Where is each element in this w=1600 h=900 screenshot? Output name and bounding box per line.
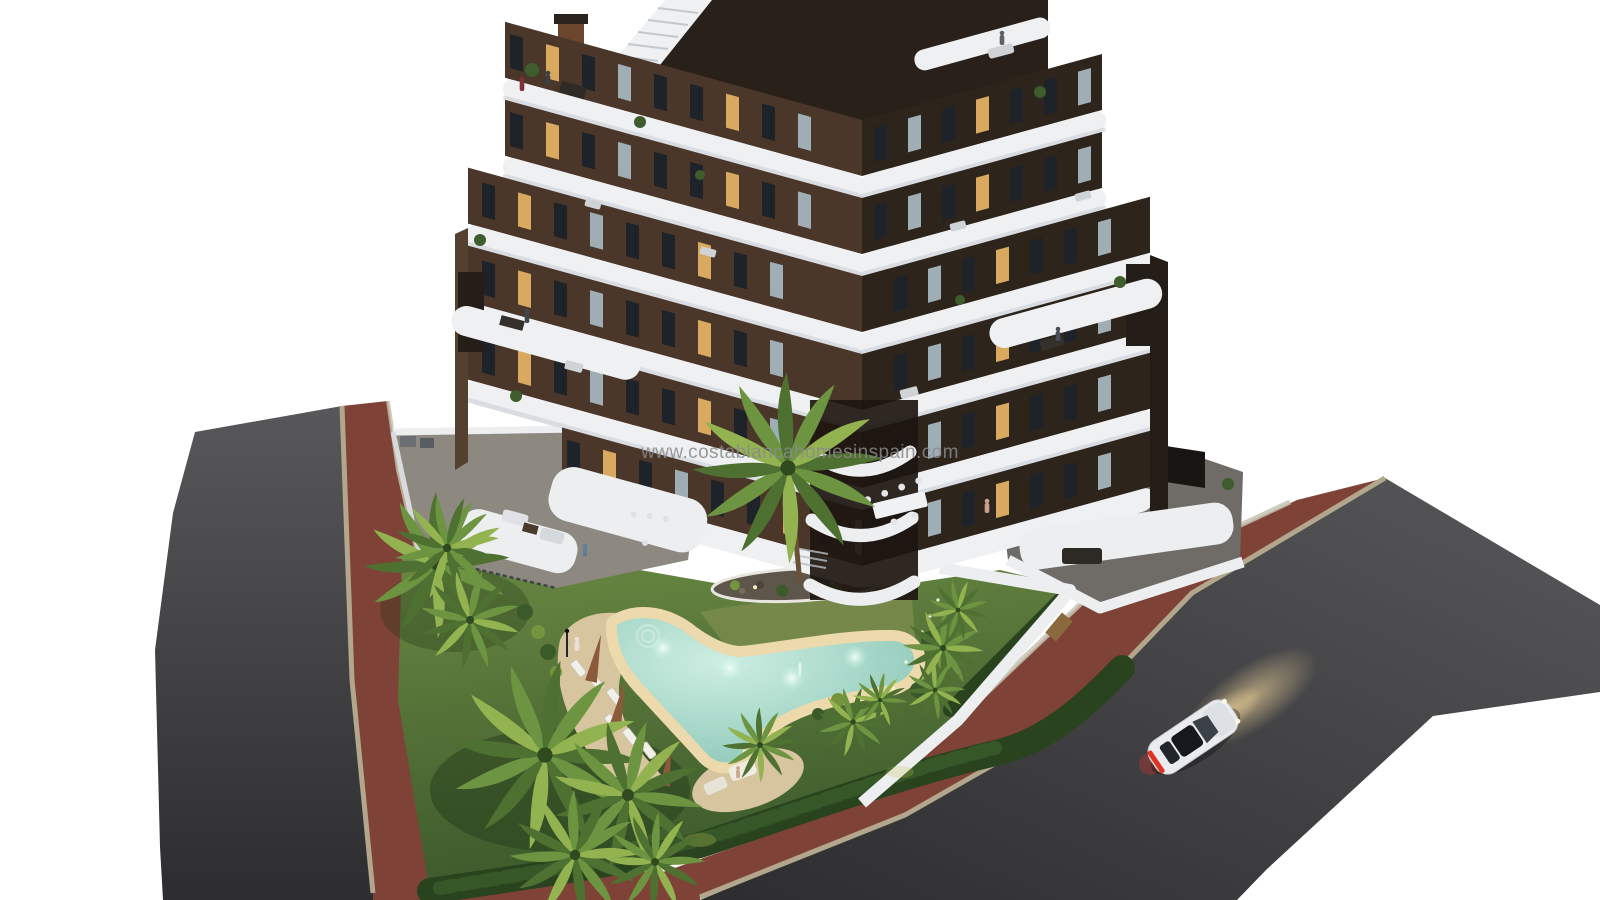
person-roof-terrace (520, 77, 525, 91)
person-seated-pool (736, 766, 740, 778)
watermark-text: www.costablancahomesinspain.com (640, 442, 959, 463)
person-ground-sofa (583, 544, 587, 557)
person-roof-terrace (546, 71, 551, 85)
roof-chimney-cap (554, 14, 588, 24)
lounge-set-right (1062, 548, 1102, 564)
person-terrace-l4 (1056, 327, 1061, 341)
underwater-light (843, 645, 867, 669)
utility-box (400, 436, 416, 447)
left-road-asphalt (155, 406, 373, 900)
scene-svg: www.costablancahomesinspain.com (0, 0, 1600, 900)
utility-box (420, 438, 434, 448)
person-terrace-l4 (525, 309, 530, 323)
pool-lamp-head (565, 629, 569, 633)
person-standing-pool (575, 637, 580, 651)
underwater-light (717, 655, 743, 681)
lit-shrub-glow (886, 766, 914, 778)
underwater-light (651, 636, 675, 660)
render-canvas: www.costablancahomesinspain.com (0, 0, 1600, 900)
person-penthouse (1000, 31, 1005, 45)
person-ground-terrace (985, 499, 990, 513)
